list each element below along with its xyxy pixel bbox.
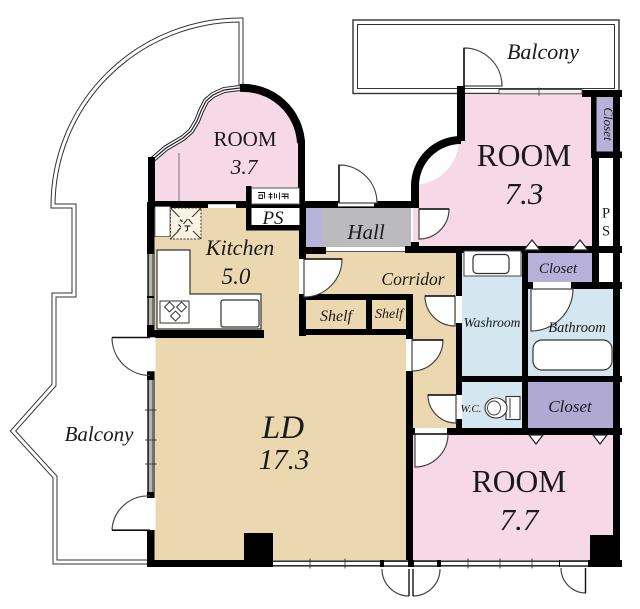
svg-text:3.7: 3.7 [230,155,259,179]
svg-text:ROOM: ROOM [213,127,276,151]
svg-text:Balcony: Balcony [65,422,134,446]
svg-text:7.7: 7.7 [500,502,540,537]
svg-text:LD: LD [261,410,304,446]
svg-text:Corridor: Corridor [381,269,444,289]
svg-text:Closet: Closet [539,261,578,277]
svg-text:17.3: 17.3 [259,444,310,476]
svg-text:Shelf: Shelf [375,307,405,322]
svg-text:Hall: Hall [346,220,385,244]
svg-text:ROOM: ROOM [472,464,567,499]
svg-text:Closet: Closet [548,397,593,416]
svg-text:PS: PS [261,208,284,229]
svg-text:ROOM: ROOM [477,138,572,173]
svg-text:P: P [602,206,610,222]
svg-text:5.0: 5.0 [222,264,251,289]
svg-text:W.C.: W.C. [461,403,482,415]
svg-text:Balcony: Balcony [507,39,579,64]
svg-text:7.3: 7.3 [505,176,544,211]
svg-text:Bathroom: Bathroom [548,320,605,336]
svg-text:Kitchen: Kitchen [205,235,274,260]
svg-text:Washroom: Washroom [464,315,521,330]
svg-text:S: S [602,224,610,240]
svg-text:Shelf: Shelf [320,308,355,325]
